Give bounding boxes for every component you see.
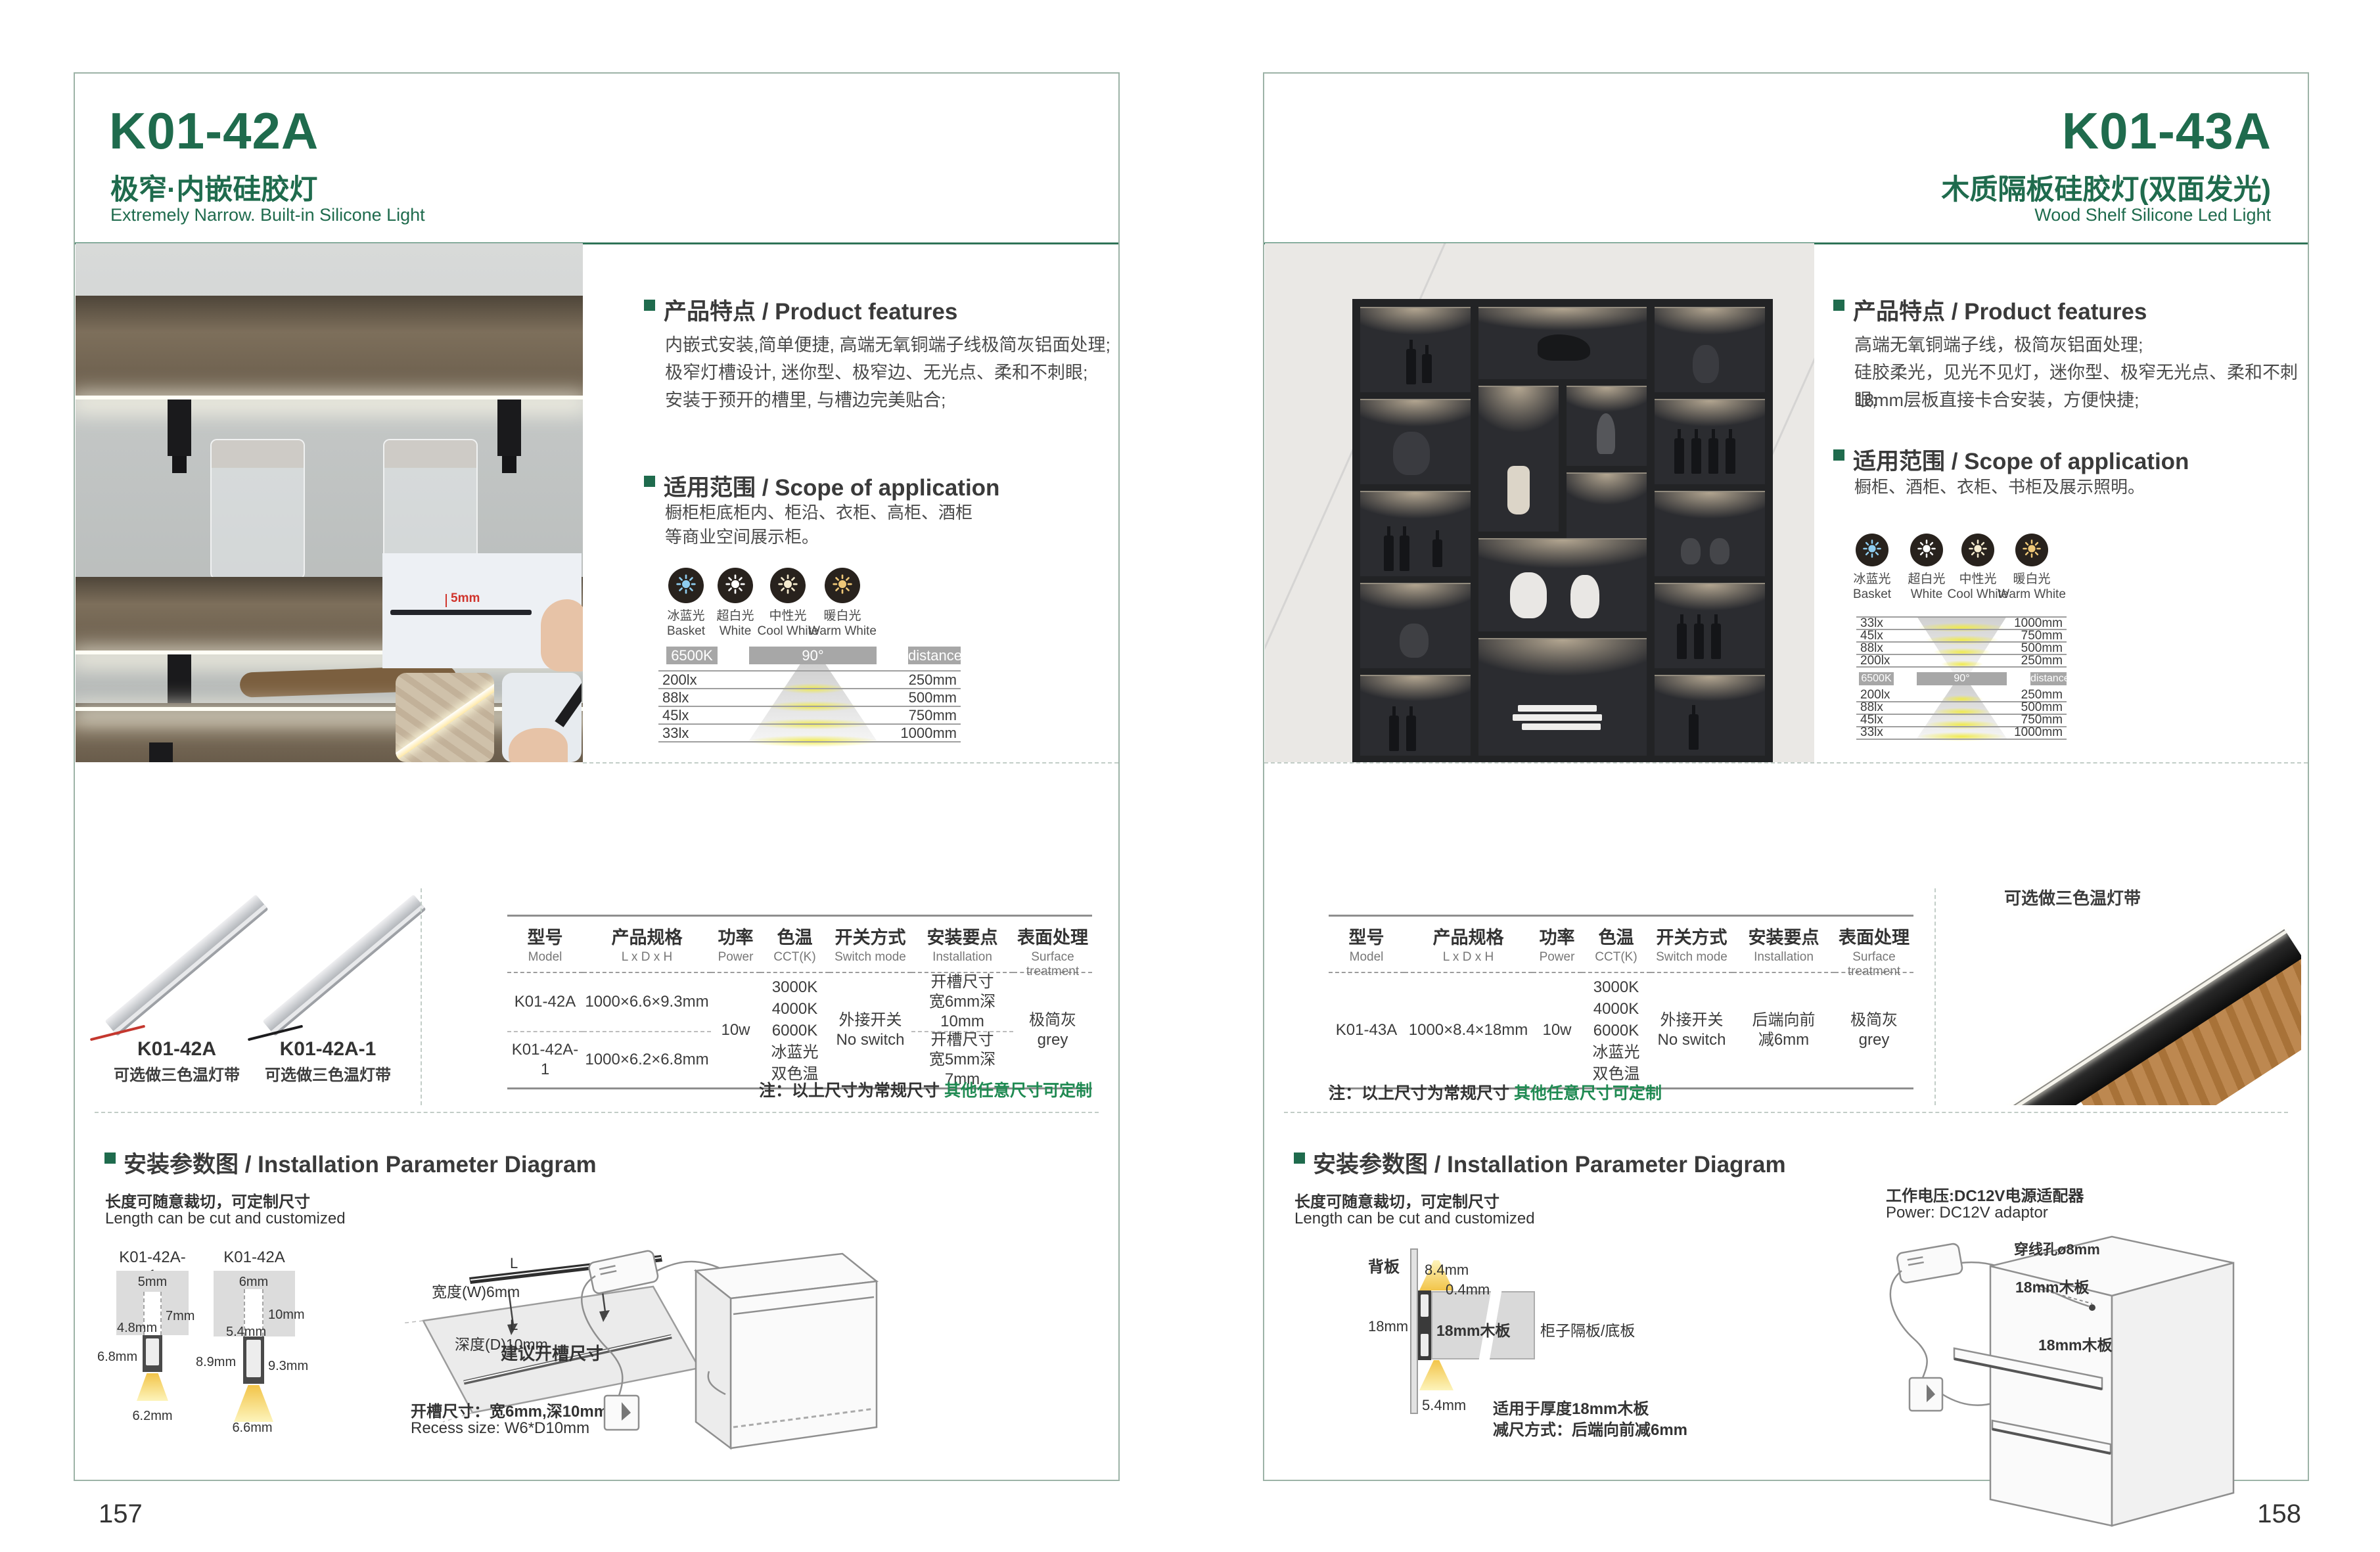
led-groove-line <box>396 673 494 760</box>
section-bullet <box>644 476 655 487</box>
books <box>1518 705 1597 712</box>
cabinet-compartment <box>1655 399 1765 484</box>
bottle <box>1422 354 1432 383</box>
books <box>1522 723 1601 730</box>
light-profile <box>243 1336 264 1384</box>
sun-icon <box>2022 539 2042 562</box>
col-header: 色温CCT(K) <box>760 917 829 973</box>
feature-line: 安装于预开的槽里, 与槽边完美贴合; <box>665 386 946 414</box>
chart-row: 88lx500mm <box>658 688 961 706</box>
section-divider <box>1284 1112 2288 1113</box>
col-header: 开关方式Switch mode <box>1651 917 1733 973</box>
cct-ice-icon <box>668 568 704 603</box>
wiring-cabinet-sketch <box>561 1230 903 1473</box>
bottle <box>1406 349 1416 384</box>
cabinet-compartment <box>1360 307 1471 392</box>
cell-install: 开槽尺寸 宽6mm深10mm <box>911 973 1013 1032</box>
chart-row: 88lx500mm <box>1856 701 2067 714</box>
chart-row: 200lx250mm <box>1856 689 2067 701</box>
wiring-cabinet-sketch <box>1875 1223 2270 1532</box>
cabinet-compartment <box>1360 675 1471 756</box>
page-number: 157 <box>99 1499 143 1529</box>
cabinet-compartment <box>1655 307 1765 392</box>
page-title: K01-43A <box>2062 101 2272 161</box>
board-label: 18mm木板 <box>1436 1318 1510 1340</box>
col-header: 安装要点Installation <box>911 917 1013 973</box>
page-title: K01-42A <box>109 101 319 161</box>
cabinet-compartment <box>1360 491 1471 576</box>
sun-icon <box>1917 539 1936 562</box>
subtitle-en: Extremely Narrow. Built-in Silicone Ligh… <box>110 205 425 225</box>
product-photo-cabinet <box>1265 243 1814 762</box>
strip-thickness-label: 5mm <box>451 591 480 606</box>
scope-title: 适用范围 / Scope of application <box>664 469 999 503</box>
feature-line: 高端无氧铜端子线，极简灰铝面处理; <box>1854 331 2143 359</box>
spec-table: 型号Model 产品规格L x D x H 功率Power 色温CCT(K) 开… <box>1329 915 1913 1089</box>
section-divider <box>583 762 1118 764</box>
light-beam <box>137 1373 168 1401</box>
install-title: 安装参数图 / Installation Parameter Diagram <box>1313 1146 1786 1179</box>
cabinet-compartment <box>1655 491 1765 576</box>
glass <box>1681 538 1701 564</box>
features-title: 产品特点 / Product features <box>664 293 957 327</box>
spec-table: 型号Model 产品规格L x D x H 功率Power 色温CCT(K) 开… <box>507 915 1092 1089</box>
cabinet-compartment <box>1478 307 1647 379</box>
chart-baseline <box>1856 739 2067 740</box>
cell-size: 1000×6.6×9.3mm <box>583 973 711 1032</box>
section-bullet <box>644 300 655 311</box>
bottle <box>1694 624 1704 659</box>
chart-row: 200lx250mm <box>658 670 961 688</box>
cct-label: 暖白光Warm White <box>1992 572 2071 602</box>
cct-coolwhite-icon <box>1961 534 1994 566</box>
bottle <box>1400 536 1409 571</box>
col-header: 型号Model <box>507 917 583 973</box>
double-light-profile <box>1418 1290 1431 1360</box>
sun-icon <box>675 574 697 598</box>
cut-note-en: Length can be cut and customized <box>105 1210 346 1228</box>
dim-left: 8.9mm <box>196 1355 236 1370</box>
cell-size: 1000×8.4×18mm <box>1404 973 1532 1087</box>
bottle <box>1689 714 1699 750</box>
cct-coolwhite-icon <box>770 568 806 603</box>
chart-row: 33lx1000mm <box>658 723 961 741</box>
inset-thickness-photo: 5mm <box>382 553 582 668</box>
light-profile <box>143 1335 162 1372</box>
dim-height: 6.8mm <box>97 1350 137 1365</box>
dim-bottom: 6.2mm <box>125 1409 180 1424</box>
wood-board-label: 18mm木板 <box>2015 1275 2089 1297</box>
subtitle-en: Wood Shelf Silicone Led Light <box>2034 205 2271 225</box>
cabinet-compartment <box>1360 399 1471 484</box>
sun-icon <box>832 574 853 598</box>
chart-row: 33lx1000mm <box>1856 726 2067 739</box>
cell-cct: 3000K 4000K 6000K 冰蓝光 双色温 <box>760 973 829 1087</box>
trophy <box>1597 413 1615 454</box>
section-bullet <box>1294 1153 1305 1164</box>
vase <box>1393 432 1430 475</box>
figurine <box>1570 575 1599 618</box>
cut-note-en: Length can be cut and customized <box>1294 1210 1535 1228</box>
bottle <box>1674 438 1684 474</box>
bottle <box>1432 539 1442 567</box>
col-header: 功率Power <box>1532 917 1582 973</box>
dim-depth: 10mm <box>268 1308 305 1323</box>
dim-depth: 7mm <box>166 1309 195 1324</box>
cut-note-zh: 长度可随意裁切，可定制尺寸 <box>1294 1189 1499 1212</box>
catalog-spread: K01-42A 极窄·内嵌硅胶灯 Extremely Narrow. Built… <box>0 0 2380 1552</box>
bottle <box>1691 438 1701 474</box>
back-panel <box>1410 1248 1418 1414</box>
shelf-label: 柜子隔板/底板 <box>1540 1318 1635 1340</box>
col-header: 开关方式Switch mode <box>829 917 911 973</box>
scope-title: 适用范围 / Scope of application <box>1853 443 2189 476</box>
aluminum-profile <box>262 894 426 1036</box>
page-right: K01-43A 木质隔板硅胶灯(双面发光) Wood Shelf Silicon… <box>1263 72 2309 1481</box>
page-left: K01-42A 极窄·内嵌硅胶灯 Extremely Narrow. Built… <box>74 72 1120 1481</box>
beam-angle-bar: 90° <box>749 647 877 664</box>
horse-sculpture <box>1538 334 1590 361</box>
inset-wood-groove-photo <box>396 673 494 762</box>
cct-warmwhite-icon <box>2015 534 2048 566</box>
cabinet-compartment <box>1478 638 1647 756</box>
bottle <box>1384 536 1394 571</box>
cct-bar: 6500K <box>1859 672 1894 685</box>
cell-surface: 极简灰 grey <box>1835 973 1913 1087</box>
chart-row: 88lx500mm <box>1856 641 2067 654</box>
product-image-k01-43a <box>1941 898 2301 1105</box>
cct-bar: 6500K <box>666 647 718 664</box>
product-name: K01-42A <box>101 1038 252 1061</box>
col-header: 表面处理Surface treatment <box>1013 917 1092 973</box>
cct-label: 暖白光Warm White <box>803 608 882 639</box>
feature-line: 极窄灯槽设计, 迷你型、极窄边、无光点、柔和不刺眼; <box>665 359 1088 386</box>
cell-power: 10w <box>1532 973 1582 1087</box>
feature-line: 18mm层板直接卡合安装，方便快捷; <box>1854 386 2140 414</box>
board-width-label: 宽度(W)6mm <box>432 1279 520 1302</box>
sun-icon <box>725 574 746 598</box>
cell-surface: 极简灰 grey <box>1013 973 1092 1087</box>
vase <box>1507 466 1530 514</box>
dim-18: 18mm <box>1368 1318 1408 1335</box>
cell-switch: 外接开关 No switch <box>1651 973 1733 1087</box>
sun-icon <box>777 574 798 598</box>
length-label: L <box>510 1255 518 1272</box>
chart-row: 33lx1000mm <box>1856 616 2067 629</box>
dim-inner: 4.8mm <box>117 1321 157 1336</box>
subtitle-zh: 极窄·内嵌硅胶灯 <box>110 167 317 208</box>
cell-model: K01-42A <box>507 973 583 1032</box>
length-label: L <box>510 1317 518 1334</box>
col-header: 产品规格L x D x H <box>1404 917 1532 973</box>
wood-board-label: 18mm木板 <box>2038 1333 2112 1355</box>
dim-bottom: 6.6mm <box>222 1421 283 1436</box>
cell-cct: 3000K 4000K 6000K 冰蓝光 双色温 <box>1582 973 1651 1087</box>
scope-text: 橱柜、酒柜、衣柜、书柜及展示照明。 <box>1854 473 2145 501</box>
section-bullet <box>1833 449 1844 461</box>
chart-row: 45lx750mm <box>658 706 961 723</box>
col-header: 产品规格L x D x H <box>583 917 711 973</box>
scope-text: 橱柜柜底柜内、柜沿、衣柜、高柜、酒柜 等商业空间展示柜。 <box>665 501 973 549</box>
cct-ice-icon <box>1856 534 1888 566</box>
decanter <box>1693 345 1719 383</box>
dim-04: 0.4mm <box>1446 1281 1490 1298</box>
col-header: 安装要点Installation <box>1733 917 1835 973</box>
shelf-bracket <box>497 399 521 456</box>
dim-54: 5.4mm <box>1422 1397 1466 1414</box>
chart-baseline <box>658 741 961 742</box>
wood-shelf <box>76 296 583 399</box>
distance-bar: distance <box>908 647 961 664</box>
shelf-bracket <box>168 399 191 456</box>
product-caption: 可选做三色温灯带 <box>101 1062 252 1085</box>
bottle <box>1726 438 1735 474</box>
beam-angle-bar: 90° <box>1917 672 2007 685</box>
bottle <box>1708 438 1718 474</box>
rabbit-figurine <box>1510 572 1547 618</box>
dim-top: 6mm <box>225 1275 283 1290</box>
dimension-tick <box>446 594 447 607</box>
fit-note-1: 适用于厚度18mm木板 <box>1493 1396 1649 1419</box>
dim-right: 9.3mm <box>268 1359 308 1374</box>
bottle <box>1389 716 1399 751</box>
diagram-label: K01-42A <box>214 1248 295 1267</box>
product-image-k01-42a <box>101 903 252 1034</box>
hand <box>509 728 568 762</box>
subtitle-zh: 木质隔板硅胶灯(双面发光) <box>1941 167 2271 208</box>
section-divider <box>95 1112 1099 1113</box>
chart-row: 45lx750mm <box>1856 714 2067 726</box>
col-header: 表面处理Surface treatment <box>1835 917 1913 973</box>
product-image-k01-42a-1 <box>252 903 403 1034</box>
chart-row: 45lx750mm <box>1856 629 2067 641</box>
col-header: 色温CCT(K) <box>1582 917 1651 973</box>
page-number: 158 <box>2229 1499 2301 1529</box>
fit-note-2: 减尺方式：后端向前减6mm <box>1493 1417 1687 1440</box>
chart-line <box>1856 666 2067 668</box>
aluminum-profile <box>104 894 268 1036</box>
inset-hand-profile-photo <box>502 673 582 762</box>
shelf-bracket <box>149 742 173 762</box>
section-bullet <box>104 1153 116 1164</box>
cabinet-compartment <box>1478 386 1559 532</box>
section-bullet <box>1833 300 1844 311</box>
col-header: 功率Power <box>711 917 760 973</box>
vertical-divider <box>421 888 422 1105</box>
power-zh: 工作电压:DC12V电源适配器 <box>1886 1183 2084 1206</box>
product-photo-shelves: 5mm <box>76 243 583 762</box>
dim-84: 8.4mm <box>1425 1262 1469 1279</box>
size-note: 注：以上尺寸为常规尺寸 其他任意尺寸可定制 <box>1329 1080 1662 1104</box>
cabinet-compartment <box>1360 583 1471 668</box>
storage-container <box>210 439 305 580</box>
cabinet-compartment <box>1567 386 1647 466</box>
hand <box>541 599 583 672</box>
light-beam <box>234 1385 273 1422</box>
light-beam-down <box>1419 1360 1453 1390</box>
display-cabinet <box>1352 299 1773 762</box>
bottle <box>1677 624 1687 659</box>
features-title: 产品特点 / Product features <box>1853 293 2147 327</box>
size-note: 注：以上尺寸为常规尺寸 其他任意尺寸可定制 <box>507 1078 1092 1101</box>
feature-line: 内嵌式安装,简单便捷, 高端无氧铜端子线极简灰铝面处理; <box>665 331 1110 359</box>
glass <box>1710 538 1729 564</box>
col-header: 型号Model <box>1329 917 1404 973</box>
install-title: 安装参数图 / Installation Parameter Diagram <box>124 1146 597 1179</box>
vertical-divider <box>1934 888 1936 1105</box>
cell-install: 后端向前 减6mm <box>1733 973 1835 1087</box>
sun-icon <box>1968 539 1988 562</box>
product-caption: 可选做三色温灯带 <box>252 1062 403 1085</box>
section-divider <box>1264 762 2308 764</box>
slim-strip <box>390 610 532 615</box>
cell-model: K01-43A <box>1329 973 1404 1087</box>
books <box>1513 714 1602 721</box>
distance-bar: distance <box>2030 672 2067 685</box>
cct-white-icon <box>1910 534 1943 566</box>
cabinet-compartment <box>1655 675 1765 756</box>
back-panel-label: 背板 <box>1368 1254 1400 1277</box>
chart-row: 200lx250mm <box>1856 654 2067 666</box>
cell-switch: 外接开关 No switch <box>829 973 911 1087</box>
power-en: Power: DC12V adaptor <box>1886 1204 2048 1222</box>
cct-white-icon <box>718 568 753 603</box>
wire-hole-label: 穿线孔ø8mm <box>2014 1238 2100 1259</box>
decanter <box>1400 624 1429 658</box>
cabinet-compartment <box>1478 538 1647 631</box>
slim-profile <box>555 673 582 727</box>
cabinet-compartment <box>1655 583 1765 668</box>
bottle <box>1406 716 1416 751</box>
dim-top: 5mm <box>126 1275 179 1290</box>
bottle <box>1711 624 1721 659</box>
product-name: K01-42A-1 <box>252 1038 403 1061</box>
cct-warmwhite-icon <box>825 568 860 603</box>
sun-icon <box>1862 539 1882 562</box>
cut-note-zh: 长度可随意裁切，可定制尺寸 <box>105 1189 310 1212</box>
cell-power: 10w <box>711 973 760 1087</box>
